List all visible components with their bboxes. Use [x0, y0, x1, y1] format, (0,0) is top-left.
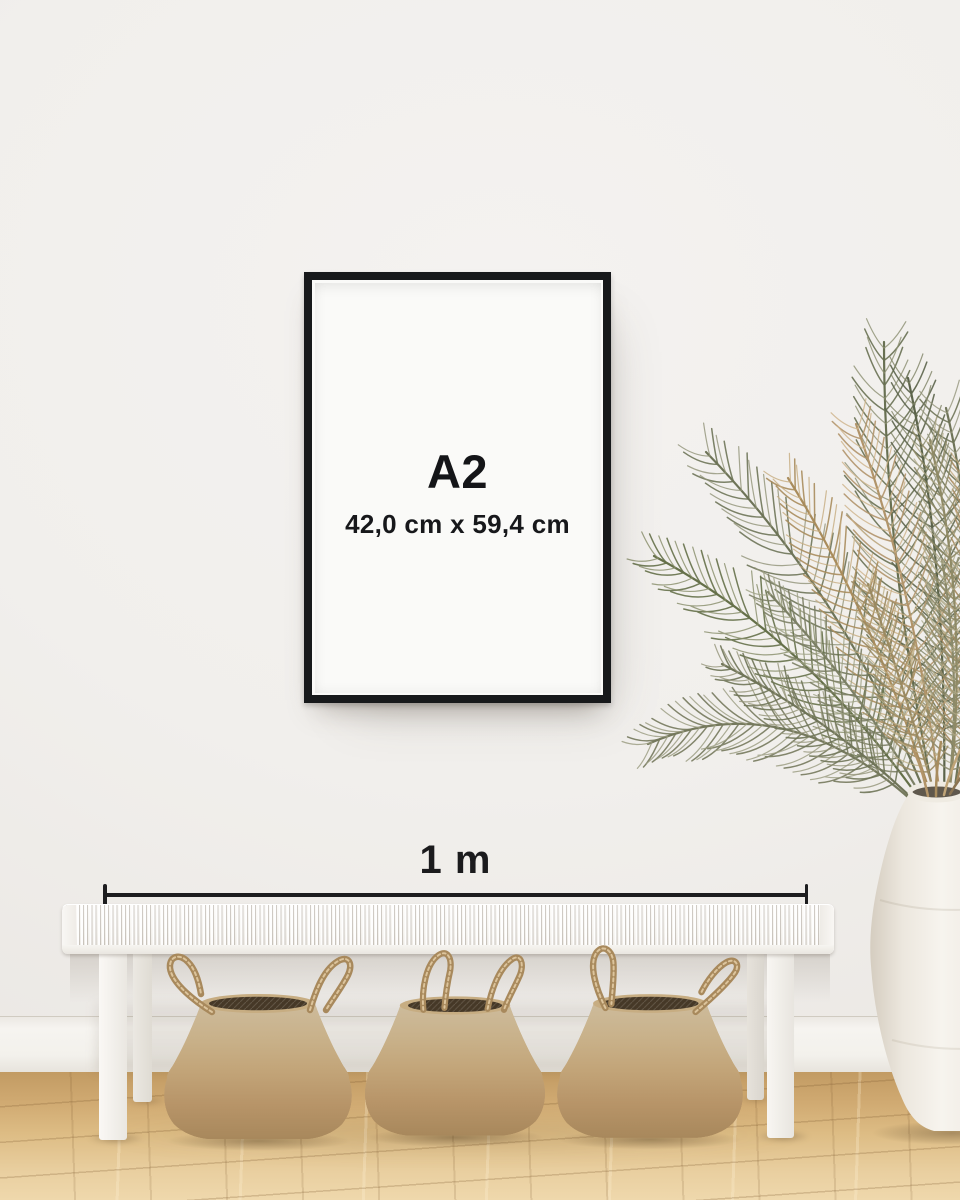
baskets: [0, 0, 960, 1200]
seagrass-basket-right: [557, 948, 742, 1149]
seagrass-basket-left: [164, 957, 351, 1151]
size-guide-scene: A2 42,0 cm x 59,4 cm 1 m: [0, 0, 960, 1200]
seagrass-basket-middle: [365, 953, 545, 1147]
